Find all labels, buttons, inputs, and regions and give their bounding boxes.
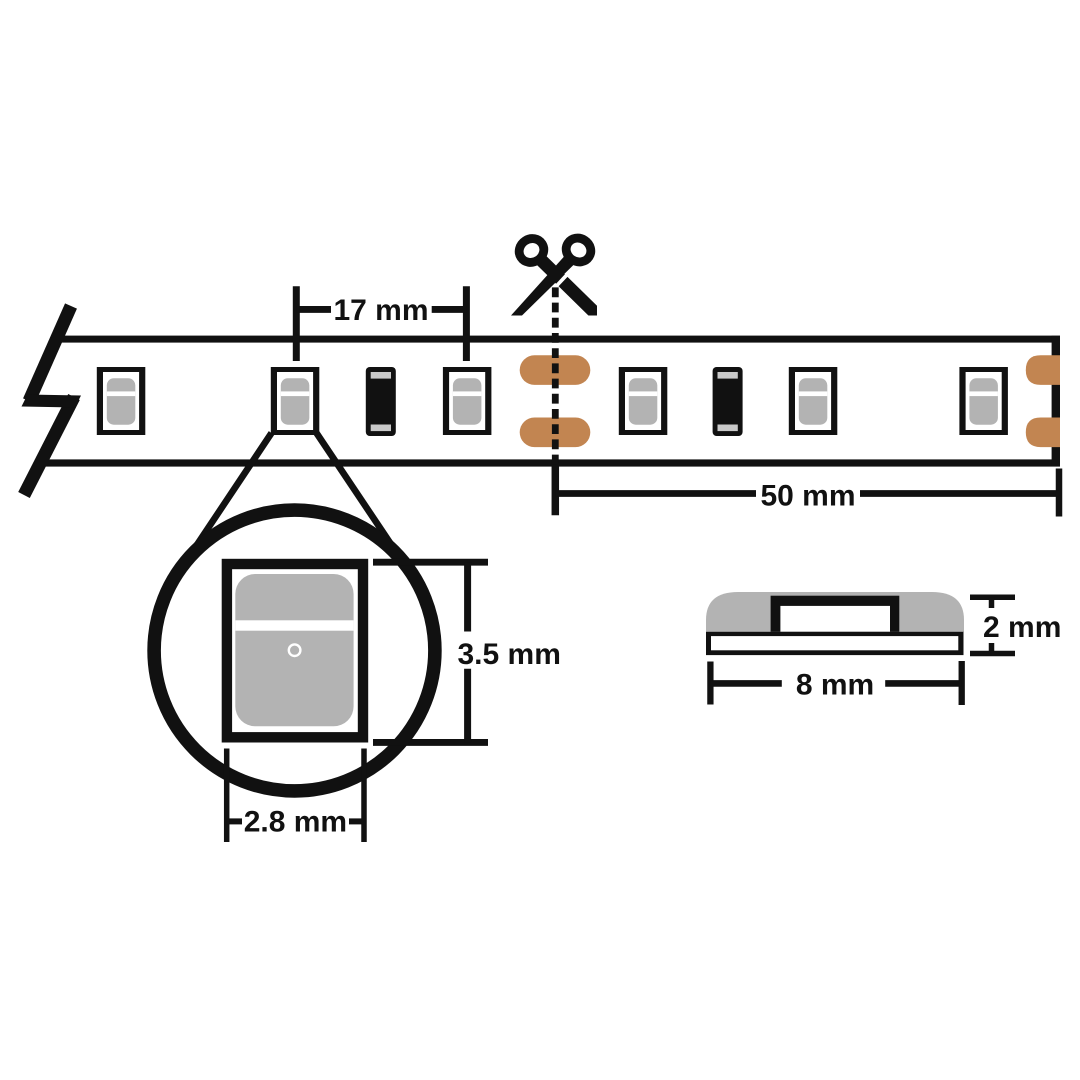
svg-text:3.5 mm: 3.5 mm [458,638,561,671]
svg-text:2.8 mm: 2.8 mm [244,806,347,839]
svg-text:17 mm: 17 mm [333,294,428,327]
svg-text:50 mm: 50 mm [760,480,855,513]
svg-text:8 mm: 8 mm [796,669,874,702]
svg-text:2 mm: 2 mm [983,611,1061,644]
